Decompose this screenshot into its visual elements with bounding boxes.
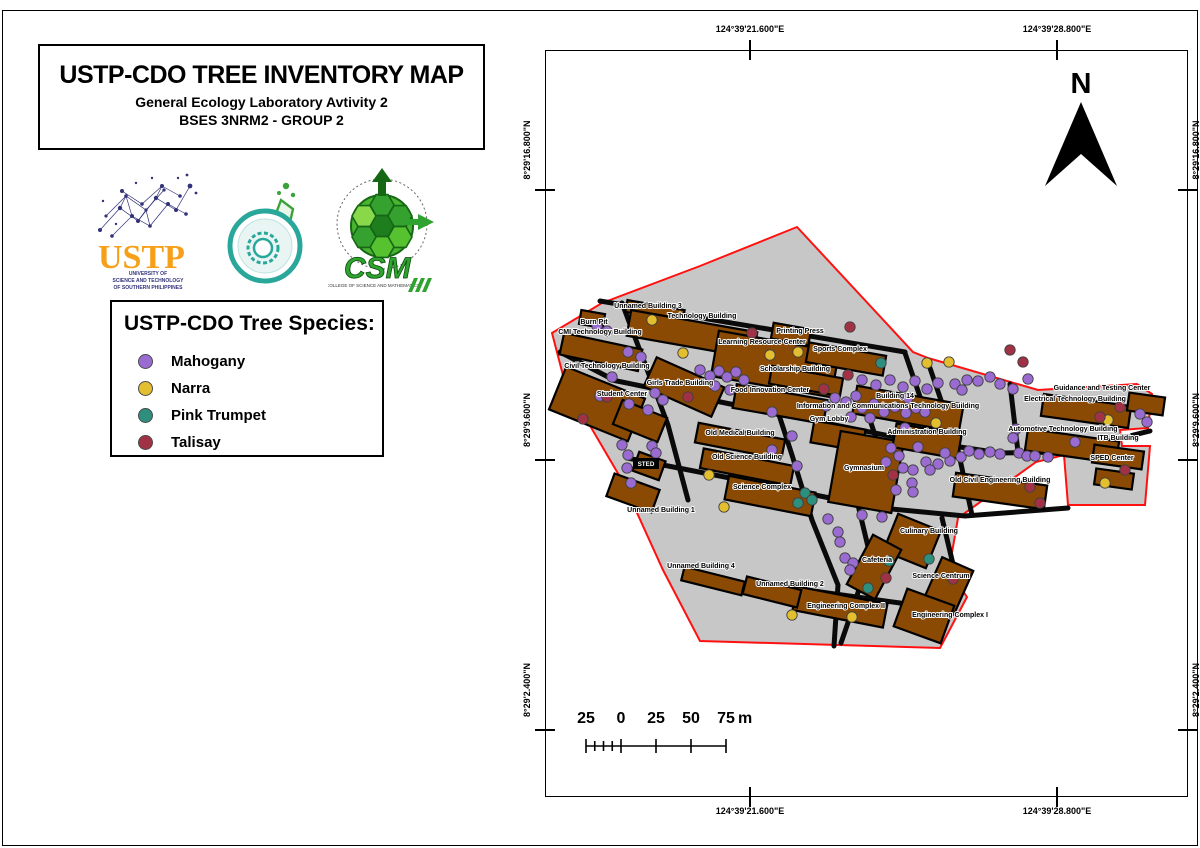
tree-dot-mahogany	[995, 379, 1005, 389]
graticule-tick	[1056, 40, 1058, 60]
tree-dot-narra	[678, 348, 688, 358]
legend-swatch	[138, 381, 153, 396]
tree-dot-mahogany	[877, 512, 887, 522]
building-label: Scholarship Building	[760, 366, 830, 373]
tree-dot-mahogany	[1070, 437, 1080, 447]
building-label: Guidance and Testing Center	[1054, 385, 1151, 392]
tree-dot-mahogany	[857, 510, 867, 520]
tree-dot-talisay	[1018, 357, 1028, 367]
building-label: Unnamed Building 1	[627, 507, 695, 514]
building-label: Unnamed Building 3	[614, 303, 682, 310]
building-label: Building 14	[876, 393, 914, 400]
tree-dot-mahogany	[1008, 433, 1018, 443]
tree-dot-mahogany	[973, 376, 983, 386]
tree-dot-talisay	[747, 328, 757, 338]
tree-dot-mahogany	[898, 382, 908, 392]
tree-dot-mahogany	[731, 367, 741, 377]
graticule-label: 8°29'16.800"N	[1191, 120, 1200, 179]
tree-dot-mahogany	[1030, 451, 1040, 461]
tree-dot-mahogany	[1135, 409, 1145, 419]
tree-dot-mahogany	[933, 378, 943, 388]
tree-dot-narra	[704, 470, 714, 480]
tree-dot-mahogany	[940, 448, 950, 458]
building-label: Administration Building	[887, 429, 966, 436]
building-label: Girls Trade Building	[647, 380, 714, 387]
building-label: Unnamed Building 4	[667, 563, 735, 570]
legend-box: USTP-CDO Tree Species: MahoganyNarraPink…	[110, 300, 384, 457]
tree-dot-pink-trumpet	[863, 583, 873, 593]
building-label: Automotive Technology Building	[1008, 426, 1117, 433]
building-label: ITB Building	[1097, 435, 1138, 442]
ustp-line2: SCIENCE AND TECHNOLOGY	[113, 278, 185, 284]
tree-dot-mahogany	[985, 447, 995, 457]
legend-items: MahoganyNarraPink TrumpetTalisay	[138, 348, 382, 456]
scalebar-number: 75	[717, 710, 735, 728]
tree-dot-pink-trumpet	[924, 554, 934, 564]
graticule-tick	[535, 459, 555, 461]
tree-dot-narra	[793, 347, 803, 357]
tree-dot-mahogany	[792, 461, 802, 471]
title-box: USTP-CDO TREE INVENTORY MAP General Ecol…	[38, 44, 485, 150]
graticule-tick	[535, 189, 555, 191]
legend-item-mahogany: Mahogany	[138, 348, 382, 375]
tree-dot-talisay	[1095, 412, 1105, 422]
graticule-tick	[749, 40, 751, 60]
building-label: Technology Building	[668, 313, 737, 320]
graticule-label: 8°29'16.800"N	[522, 120, 532, 179]
tree-dot-talisay	[1120, 465, 1130, 475]
csm-acronym: CSM	[344, 252, 412, 285]
scalebar: 250255075m	[568, 710, 778, 762]
legend-item-narra: Narra	[138, 375, 382, 402]
csm-slashes	[408, 278, 432, 292]
graticule-tick	[1178, 189, 1198, 191]
scalebar-number: 0	[617, 710, 626, 728]
legend-swatch	[138, 408, 153, 423]
tree-dot-talisay	[1035, 498, 1045, 508]
tree-dot-mahogany	[617, 440, 627, 450]
tree-dot-mahogany	[922, 384, 932, 394]
tree-dot-mahogany	[636, 352, 646, 362]
tree-dot-mahogany	[833, 527, 843, 537]
map-group: BSES 3NRM2 - GROUP 2	[40, 112, 483, 128]
tree-dot-mahogany	[830, 393, 840, 403]
tree-dot-mahogany	[607, 372, 617, 382]
graticule-tick	[1056, 787, 1058, 807]
csm-caption: COLLEGE OF SCIENCE AND MATHEMATICS	[328, 283, 420, 288]
graticule-label: 124°39'21.600"E	[716, 24, 785, 34]
scalebar-unit: m	[738, 710, 752, 728]
graticule-label: 8°29'2.400"N	[1191, 663, 1200, 717]
bubble-icon	[283, 183, 289, 189]
graticule-label: 8°29'2.400"N	[522, 663, 532, 717]
legend-label: Pink Trumpet	[171, 407, 266, 424]
graticule-tick	[535, 729, 555, 731]
building-label: Printing Press	[776, 328, 824, 335]
building-label: Old Medical Building	[705, 430, 774, 437]
building-label: Culinary Building	[900, 528, 958, 535]
scalebar-number: 50	[682, 710, 700, 728]
tree-dot-mahogany	[845, 565, 855, 575]
graticule-tick	[749, 787, 751, 807]
ustp-line1: UNIVERSITY OF	[129, 271, 167, 277]
tree-dot-talisay	[1005, 345, 1015, 355]
building-guidance-and-testing-center	[1127, 393, 1165, 416]
tree-dot-mahogany	[767, 407, 777, 417]
north-arrow: N	[1040, 68, 1130, 193]
tree-dot-mahogany	[871, 380, 881, 390]
graticule-label: 124°39'28.800"E	[1023, 806, 1092, 816]
tree-dot-mahogany	[658, 395, 668, 405]
tree-dot-mahogany	[910, 376, 920, 386]
building-label: Old Civil Engineering Building	[950, 477, 1051, 484]
tree-dot-mahogany	[643, 405, 653, 415]
graticule-tick	[1178, 729, 1198, 731]
building-label: Science Centrum	[912, 573, 969, 580]
legend-item-pink-trumpet: Pink Trumpet	[138, 402, 382, 429]
tree-dot-mahogany	[1023, 374, 1033, 384]
tree-dot-pink-trumpet	[876, 358, 886, 368]
building-label: Civil Technology Building	[564, 363, 649, 370]
building-label: Cafeteria	[862, 557, 892, 564]
ustp-logo: USTP UNIVERSITY OF SCIENCE AND TECHNOLOG…	[92, 166, 204, 292]
building-label: Gymnasium	[844, 465, 884, 472]
legend-swatch	[138, 435, 153, 450]
tree-dot-talisay	[683, 392, 693, 402]
tree-dot-mahogany	[974, 449, 984, 459]
arrow-up-icon	[372, 168, 392, 196]
csm-logo: CSM COLLEGE OF SCIENCE AND MATHEMATICS	[328, 168, 436, 298]
tree-dot-narra	[944, 357, 954, 367]
tree-dot-mahogany	[624, 399, 634, 409]
graticule-label: 8°29'9.600"N	[1191, 393, 1200, 447]
tree-dot-mahogany	[835, 537, 845, 547]
tree-dot-mahogany	[898, 463, 908, 473]
building-label: Burn Pit	[580, 319, 608, 326]
tree-dot-mahogany	[885, 375, 895, 385]
tree-dot-talisay	[881, 573, 891, 583]
tree-dot-narra	[765, 350, 775, 360]
tree-dot-talisay	[843, 370, 853, 380]
north-label: N	[1040, 68, 1122, 101]
tree-dot-mahogany	[1043, 452, 1053, 462]
tree-dot-mahogany	[964, 446, 974, 456]
tree-dot-mahogany	[995, 449, 1005, 459]
tree-dot-mahogany	[957, 385, 967, 395]
tree-dot-pink-trumpet	[807, 495, 817, 505]
building-label: Electrical Technology Building	[1024, 396, 1126, 403]
building-label: Science Complex	[733, 484, 791, 491]
poster-page: USTP-CDO TREE INVENTORY MAP General Ecol…	[0, 0, 1200, 848]
scalebar-number: 25	[647, 710, 665, 728]
tree-dot-mahogany	[739, 375, 749, 385]
tree-dot-mahogany	[908, 465, 918, 475]
legend-item-talisay: Talisay	[138, 429, 382, 456]
building-label: Unnamed Building 2	[756, 581, 824, 588]
tree-dot-mahogany	[851, 391, 861, 401]
building-label: Engineering Complex I	[912, 612, 988, 619]
graticule-tick	[1178, 459, 1198, 461]
tree-dot-mahogany	[823, 514, 833, 524]
building-label: Food Innovation Center	[731, 387, 810, 394]
building-label: Learning Resource Center	[718, 339, 806, 346]
tree-dot-mahogany	[787, 431, 797, 441]
building-label: CMI Technology Building	[558, 329, 641, 336]
ustp-network-dots	[98, 174, 197, 238]
tree-dot-mahogany	[891, 485, 901, 495]
scalebar-number: 25	[577, 710, 595, 728]
tree-dot-mahogany	[1008, 384, 1018, 394]
legend-label: Mahogany	[171, 353, 245, 370]
tree-dot-mahogany	[857, 375, 867, 385]
tree-dot-talisay	[888, 470, 898, 480]
tree-dot-talisay	[1115, 402, 1125, 412]
tree-dot-narra	[1100, 478, 1110, 488]
building-label: Engineering Complex II	[807, 603, 885, 610]
tree-dot-narra	[719, 502, 729, 512]
graticule-label: 8°29'9.600"N	[522, 393, 532, 447]
tree-dot-talisay	[819, 384, 829, 394]
map-title: USTP-CDO TREE INVENTORY MAP	[40, 61, 483, 90]
map-subtitle: General Ecology Laboratory Avtivity 2	[40, 94, 483, 110]
legend-label: Talisay	[171, 434, 221, 451]
tree-dot-talisay	[845, 322, 855, 332]
tree-dot-narra	[787, 610, 797, 620]
tree-dot-mahogany	[865, 413, 875, 423]
tree-dot-mahogany	[886, 443, 896, 453]
tree-dot-mahogany	[626, 478, 636, 488]
tree-dot-mahogany	[925, 465, 935, 475]
tree-dot-mahogany	[894, 451, 904, 461]
tree-dot-mahogany	[962, 375, 972, 385]
tree-dot-mahogany	[623, 450, 633, 460]
building-label: Information and Communications Technolog…	[797, 403, 979, 410]
tree-dot-mahogany	[623, 347, 633, 357]
tree-dot-narra	[647, 315, 657, 325]
building-label: Student Center	[597, 391, 647, 398]
tree-dot-mahogany	[622, 463, 632, 473]
building-label: Sports Complex	[813, 346, 867, 353]
tree-dot-talisay	[578, 414, 588, 424]
tree-dot-narra	[847, 612, 857, 622]
environmental-science-logo	[224, 176, 312, 290]
tree-dot-mahogany	[985, 372, 995, 382]
tree-dot-narra	[931, 418, 941, 428]
building-label: STED	[638, 461, 655, 468]
tree-dot-mahogany	[695, 365, 705, 375]
tree-dot-mahogany	[908, 487, 918, 497]
tree-dot-mahogany	[913, 442, 923, 452]
building-label: Old Science Building	[712, 454, 782, 461]
ustp-line3: OF SOUTHERN PHILIPPINES	[114, 285, 184, 291]
building-label: Gym Lobby	[810, 416, 849, 423]
tree-dot-narra	[922, 358, 932, 368]
legend-swatch	[138, 354, 153, 369]
graticule-label: 124°39'28.800"E	[1023, 24, 1092, 34]
tree-dot-pink-trumpet	[793, 498, 803, 508]
tree-dot-mahogany	[651, 448, 661, 458]
legend-title: USTP-CDO Tree Species:	[124, 312, 382, 336]
graticule-label: 124°39'21.600"E	[716, 806, 785, 816]
legend-label: Narra	[171, 380, 210, 397]
building-label: SPED Center	[1090, 455, 1133, 462]
